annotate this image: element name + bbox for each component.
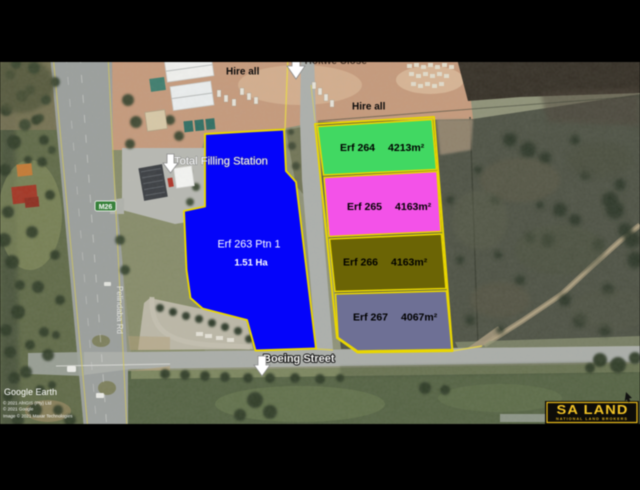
- svg-text:© 2021 Google: © 2021 Google: [3, 406, 34, 412]
- svg-text:Erf 263 Ptn 1: Erf 263 Ptn 1: [217, 239, 280, 251]
- svg-text:Google Earth: Google Earth: [4, 387, 57, 397]
- svg-text:1.51 Ha: 1.51 Ha: [234, 258, 268, 269]
- svg-text:Pelindaba Rd: Pelindaba Rd: [115, 286, 124, 334]
- svg-text:Image © 2021 Maxar Technologie: Image © 2021 Maxar Technologies: [3, 413, 73, 419]
- svg-text:© 2021 AfriGIS (Pty) Ltd: © 2021 AfriGIS (Pty) Ltd: [3, 400, 52, 406]
- svg-text:Boeing Street: Boeing Street: [263, 353, 335, 365]
- svg-text:NATIONAL LAND BROKERS: NATIONAL LAND BROKERS: [556, 417, 628, 421]
- svg-text:SA LAND: SA LAND: [557, 403, 629, 417]
- svg-text:Hire all: Hire all: [226, 67, 260, 78]
- svg-text:Total Filling Station: Total Filling Station: [174, 156, 268, 168]
- svg-text:Hire all: Hire all: [352, 102, 386, 113]
